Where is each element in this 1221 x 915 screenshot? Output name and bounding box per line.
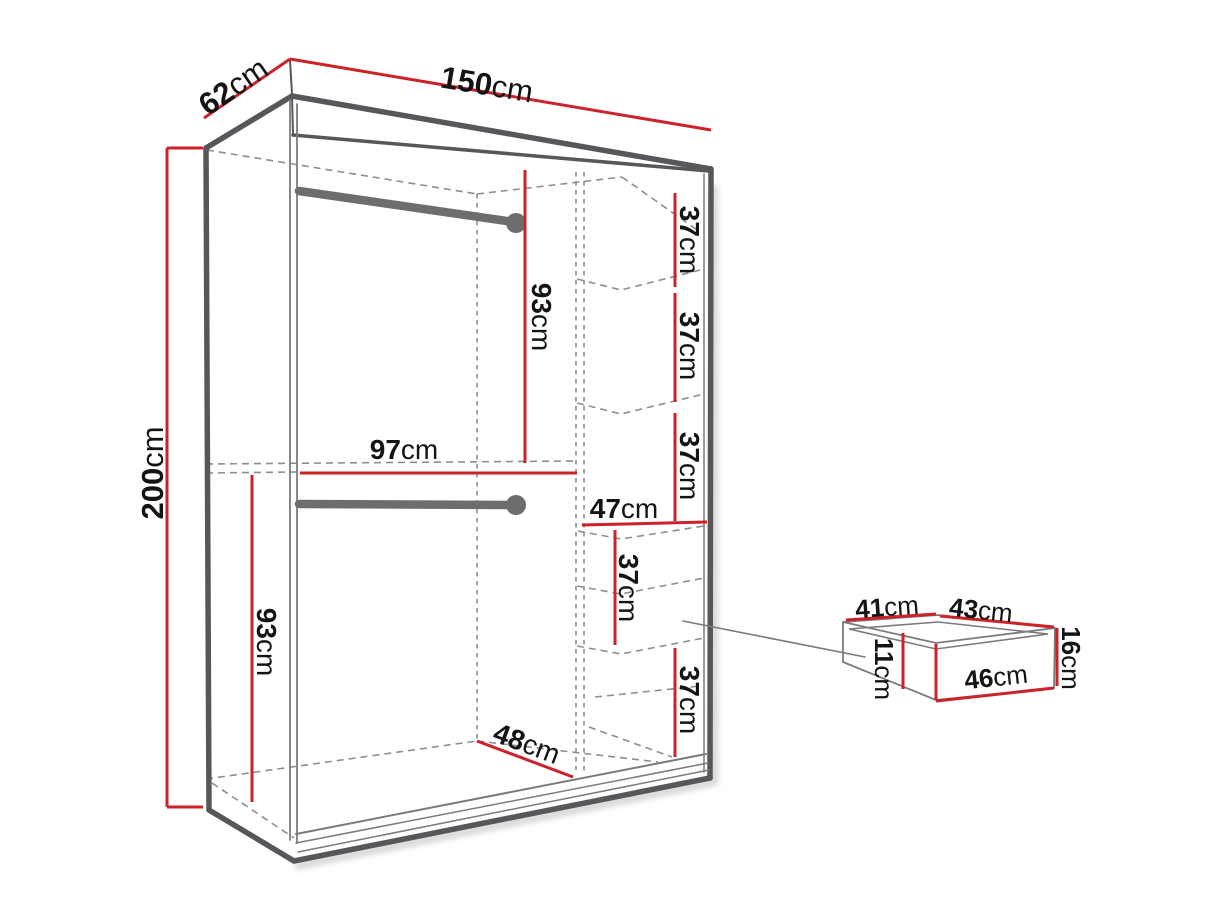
label-drawer-11cm: 11cm [869,638,899,700]
label-upper-93cm: 93cm [527,283,558,351]
column-floor-edge [589,727,672,757]
shelf-3 [578,526,704,539]
plinth-line-2 [298,770,709,852]
lower-hanging-rail [299,504,514,505]
label-depth-48cm: 48cm [489,716,564,769]
plinth-line-1 [296,763,708,843]
label-drawerzone1-37cm: 37cm [614,554,645,622]
top-slab-left-cap [292,96,293,135]
label-shelf3-37cm: 37cm [675,432,706,500]
top-slab-underside-edge [293,135,709,171]
diagram-canvas: 150cm 62cm 200cm 93cm 97cm 93cm 37cm 37c… [0,0,1221,915]
lower-rail-end-knob [506,495,526,515]
wardrobe-dimension-diagram: 150cm 62cm 200cm 93cm 97cm 93cm 37cm 37c… [0,0,1221,915]
cabinet-structure [206,60,711,861]
label-drawer-43cm: 43cm [948,592,1014,628]
label-width-150cm: 150cm [438,59,536,109]
hanging-rails [299,191,526,515]
label-hanging-97cm: 97cm [370,434,438,465]
shelf-2 [577,394,704,414]
label-drawer-46cm: 46cm [963,659,1029,695]
label-column-47cm: 47cm [590,493,658,524]
upper-hanging-rail [299,191,514,222]
label-shelf1-37cm: 37cm [675,206,706,274]
right-outer-edge [710,169,711,778]
label-height-200cm: 200cm [135,426,170,519]
middle-shelf-front-edge [206,472,297,473]
apex-corner-tick [290,60,292,94]
left-outer-edge [206,148,209,810]
dimension-lines [167,59,711,807]
label-shelf2-37cm: 37cm [675,312,706,380]
upper-rail-end-knob [506,213,526,233]
label-drawer-41cm: 41cm [854,590,920,624]
drawer-divider-2 [577,638,704,654]
label-drawerzone2-37cm: 37cm [675,666,706,734]
floor-back-edge-left [206,741,477,779]
top-front-edge [292,96,711,169]
drawer-right-edge [1054,628,1055,688]
bottom-front-edge [294,778,710,861]
label-lower-93cm: 93cm [252,608,283,676]
ceiling-back-edge-left [207,150,477,194]
dimension-labels: 150cm 62cm 200cm 93cm 97cm 93cm 37cm 37c… [135,50,1087,769]
label-drawer-16cm: 16cm [1056,626,1086,690]
bottom-left-slant-edge [209,810,294,861]
ceiling-back-edge-right [477,177,622,194]
